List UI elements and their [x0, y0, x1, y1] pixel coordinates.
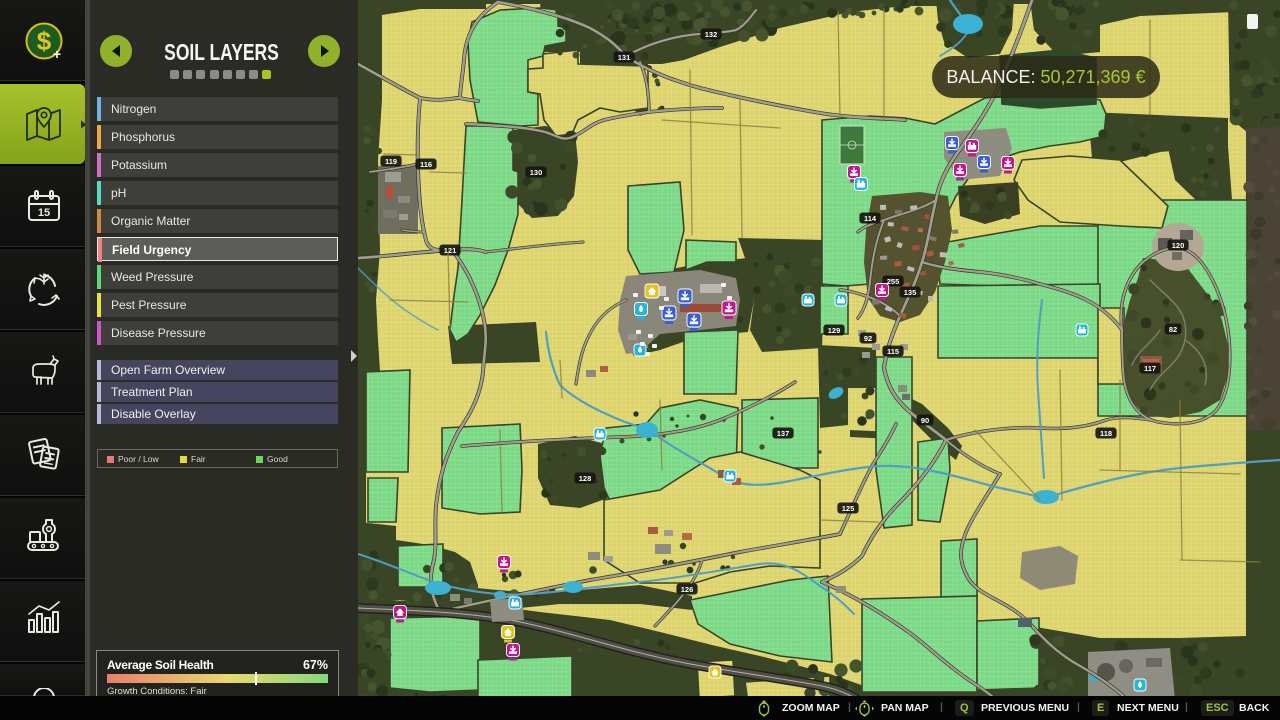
svg-text:129: 129 [828, 326, 841, 335]
svg-text:132: 132 [705, 30, 718, 39]
svg-text:120: 120 [1172, 241, 1185, 250]
svg-text:128: 128 [579, 474, 592, 483]
svg-text:118: 118 [1100, 429, 1112, 438]
svg-text:90: 90 [921, 416, 929, 425]
svg-text:255: 255 [887, 277, 900, 286]
svg-text:135: 135 [904, 288, 917, 297]
svg-text:131: 131 [618, 53, 631, 62]
svg-text:92: 92 [864, 334, 872, 343]
svg-text:126: 126 [681, 585, 694, 594]
svg-text:116: 116 [420, 160, 432, 169]
svg-text:+: + [53, 46, 61, 62]
svg-text:119: 119 [385, 157, 397, 166]
svg-text:82: 82 [1169, 325, 1177, 334]
svg-text:114: 114 [864, 214, 877, 223]
svg-text:130: 130 [530, 168, 543, 177]
svg-text:115: 115 [887, 347, 899, 356]
svg-text:137: 137 [777, 429, 790, 438]
svg-text:$: $ [37, 26, 52, 56]
svg-text:125: 125 [842, 504, 855, 513]
svg-text:121: 121 [444, 246, 457, 255]
svg-text:117: 117 [1144, 364, 1156, 373]
svg-text:15: 15 [38, 207, 50, 219]
